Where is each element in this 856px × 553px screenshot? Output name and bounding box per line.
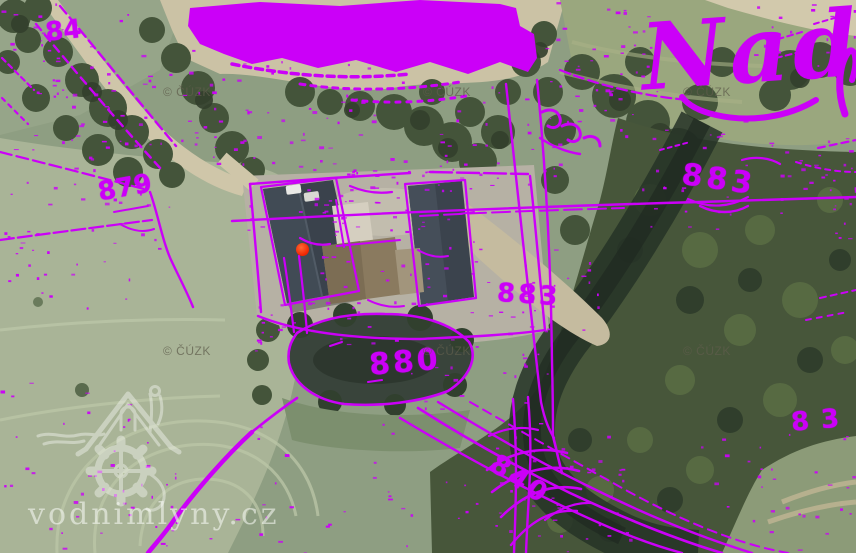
aerial-map-canvas[interactable]: Nad 84 879 883 883 880 840 83 © ČÚZK © Č… bbox=[0, 0, 856, 553]
parcel-label-84: 84 bbox=[44, 16, 83, 46]
provider-watermark: © ČÚZK bbox=[423, 85, 471, 99]
site-watermark: vodnimlyny.cz bbox=[28, 500, 280, 530]
parcel-label-83: 83 bbox=[790, 405, 852, 436]
provider-watermark: © ČÚZK bbox=[423, 344, 471, 358]
place-name-label: Nad bbox=[638, 0, 856, 104]
provider-watermark: © ČÚZK bbox=[163, 344, 211, 358]
provider-watermark: © ČÚZK bbox=[163, 85, 211, 99]
mill-location-marker[interactable] bbox=[296, 243, 309, 256]
parcel-label-883-center: 883 bbox=[496, 280, 561, 310]
provider-watermark: © ČÚZK bbox=[683, 85, 731, 99]
provider-watermark: © ČÚZK bbox=[683, 344, 731, 358]
